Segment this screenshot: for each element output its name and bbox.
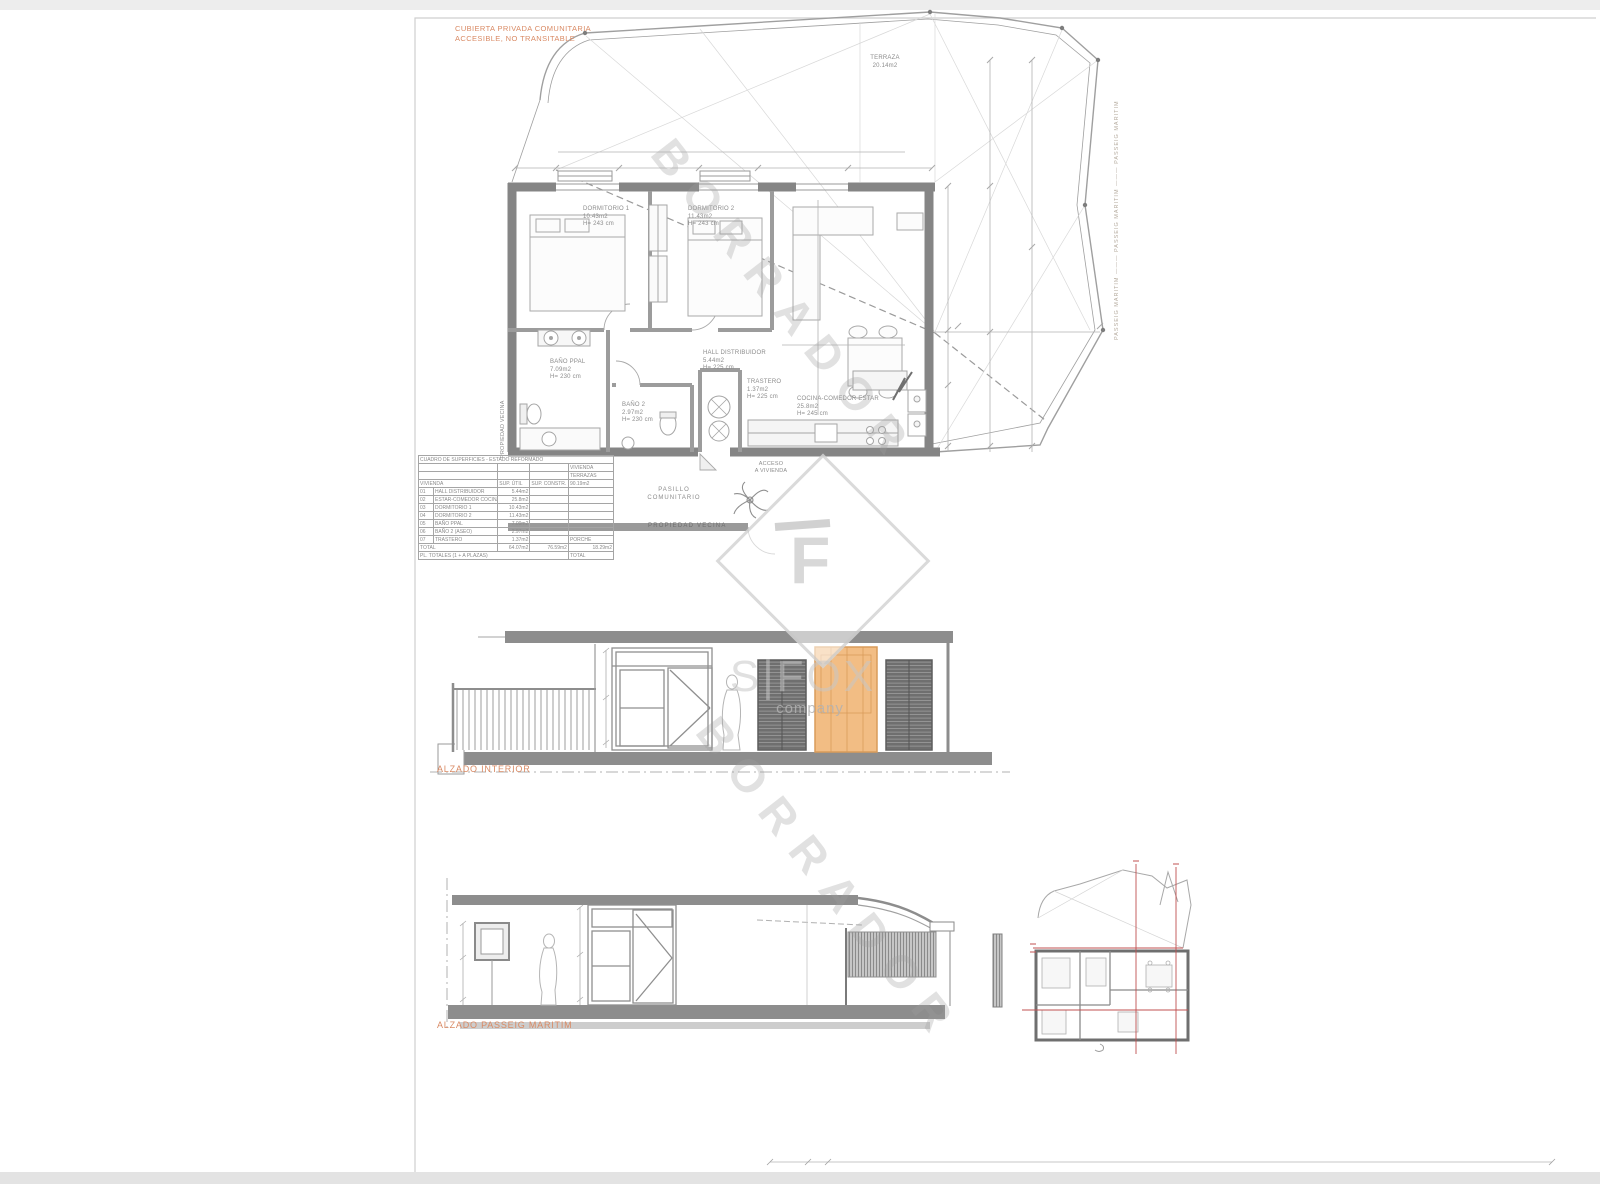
small-window [475, 923, 509, 1005]
elevation-dims [603, 648, 609, 748]
room-label-bano-2: BAÑO 22.97m2H= 230 cm [622, 402, 653, 425]
wall-section-cut [993, 934, 1002, 1007]
surface-table-row: 02ESTAR-COMEDOR COCINA25.8m2 [419, 496, 614, 504]
propiedad-vecina-bottom: PROPIEDAD VECINA [648, 523, 727, 531]
surface-table-row: 03DORMITORIO 110.43m2 [419, 504, 614, 512]
table-cell: 90.19m2 [568, 480, 613, 488]
human-figure-2 [540, 934, 557, 1005]
table-cell: VIVIENDA [419, 480, 498, 488]
table-cell: SUP. CONSTR. [530, 480, 569, 488]
passeig-maritim-label: PASSEIG MARITIM ——— PASSEIG MARITIM ——— … [1114, 100, 1121, 340]
table-cell: TERRAZAS [568, 472, 613, 480]
roof-slab [505, 631, 953, 643]
room-label-dormitorio-1: DORMITORIO 110.43m2H= 243 cm [583, 206, 629, 229]
surface-table-title-row: CUADRO DE SUPERFICIES - ESTADO REFORMADO [419, 456, 614, 464]
surface-table-row: 06BAÑO 2 (ASEO)2.97m2 [419, 528, 614, 536]
surface-table-footer-row: PL. TOTALES (1 + A PLAZAS) TOTAL [419, 552, 614, 560]
table-cell: VIVIENDA [568, 464, 613, 472]
surface-table-row: 05BAÑO PPAL7.09m2 [419, 520, 614, 528]
terraza-label: TERRAZA 20.14m2 [855, 55, 915, 70]
lucas-fox-brand: S|FOX [698, 652, 908, 702]
surface-table-row: 07TRASTERO1.37m2PORCHE [419, 536, 614, 544]
surface-table-row: 01HALL DISTRIBUIDOR5.44m2 [419, 488, 614, 496]
surface-table-row: 04DORMITORIO 211.43m2 [419, 512, 614, 520]
base-slab [448, 1005, 945, 1019]
lucas-fox-monogram: F [790, 522, 830, 598]
pasillo-label: PASILLOCOMUNITARIO [642, 487, 706, 502]
glazed-door-2 [588, 905, 676, 1005]
drawing-sheet: { "plan": { "roof_note_line1": "CUBIERTA… [0, 0, 1600, 1200]
footer-dimension-line [767, 1159, 1555, 1165]
surface-table-total-row: TOTAL 64.07m2 76.59m2 18.29m2 [419, 544, 614, 552]
propiedad-vecina-left: PROPIEDAD VECINA [500, 400, 507, 458]
surface-table-title: CUADRO DE SUPERFICIES - ESTADO REFORMADO [419, 456, 614, 464]
acceso-label: ACCESOA VIVIENDA [748, 461, 794, 475]
table-cell: SUP. ÚTIL [498, 480, 530, 488]
lucas-fox-tagline: company [745, 700, 875, 717]
room-label-hall: HALL DISTRIBUIDOR5.44m2H= 225 cm [703, 350, 766, 373]
room-label-trastero: TRASTERO1.37m2H= 225 cm [747, 379, 781, 402]
alzado-interior-label: ALZADO INTERIOR [437, 764, 531, 775]
key-plan [1022, 861, 1191, 1054]
roof-note: CUBIERTA PRIVADA COMUNITARIA ACCESIBLE, … [455, 24, 591, 44]
surface-table: CUADRO DE SUPERFICIES - ESTADO REFORMADO… [418, 455, 614, 560]
room-label-bano-ppal: BAÑO PPAL7.09m2H= 230 cm [550, 359, 585, 382]
alzado-passeig-label: ALZADO PASSEIG MARITIM [437, 1020, 572, 1031]
terrace-railing [452, 644, 596, 752]
roof-band [452, 895, 858, 905]
